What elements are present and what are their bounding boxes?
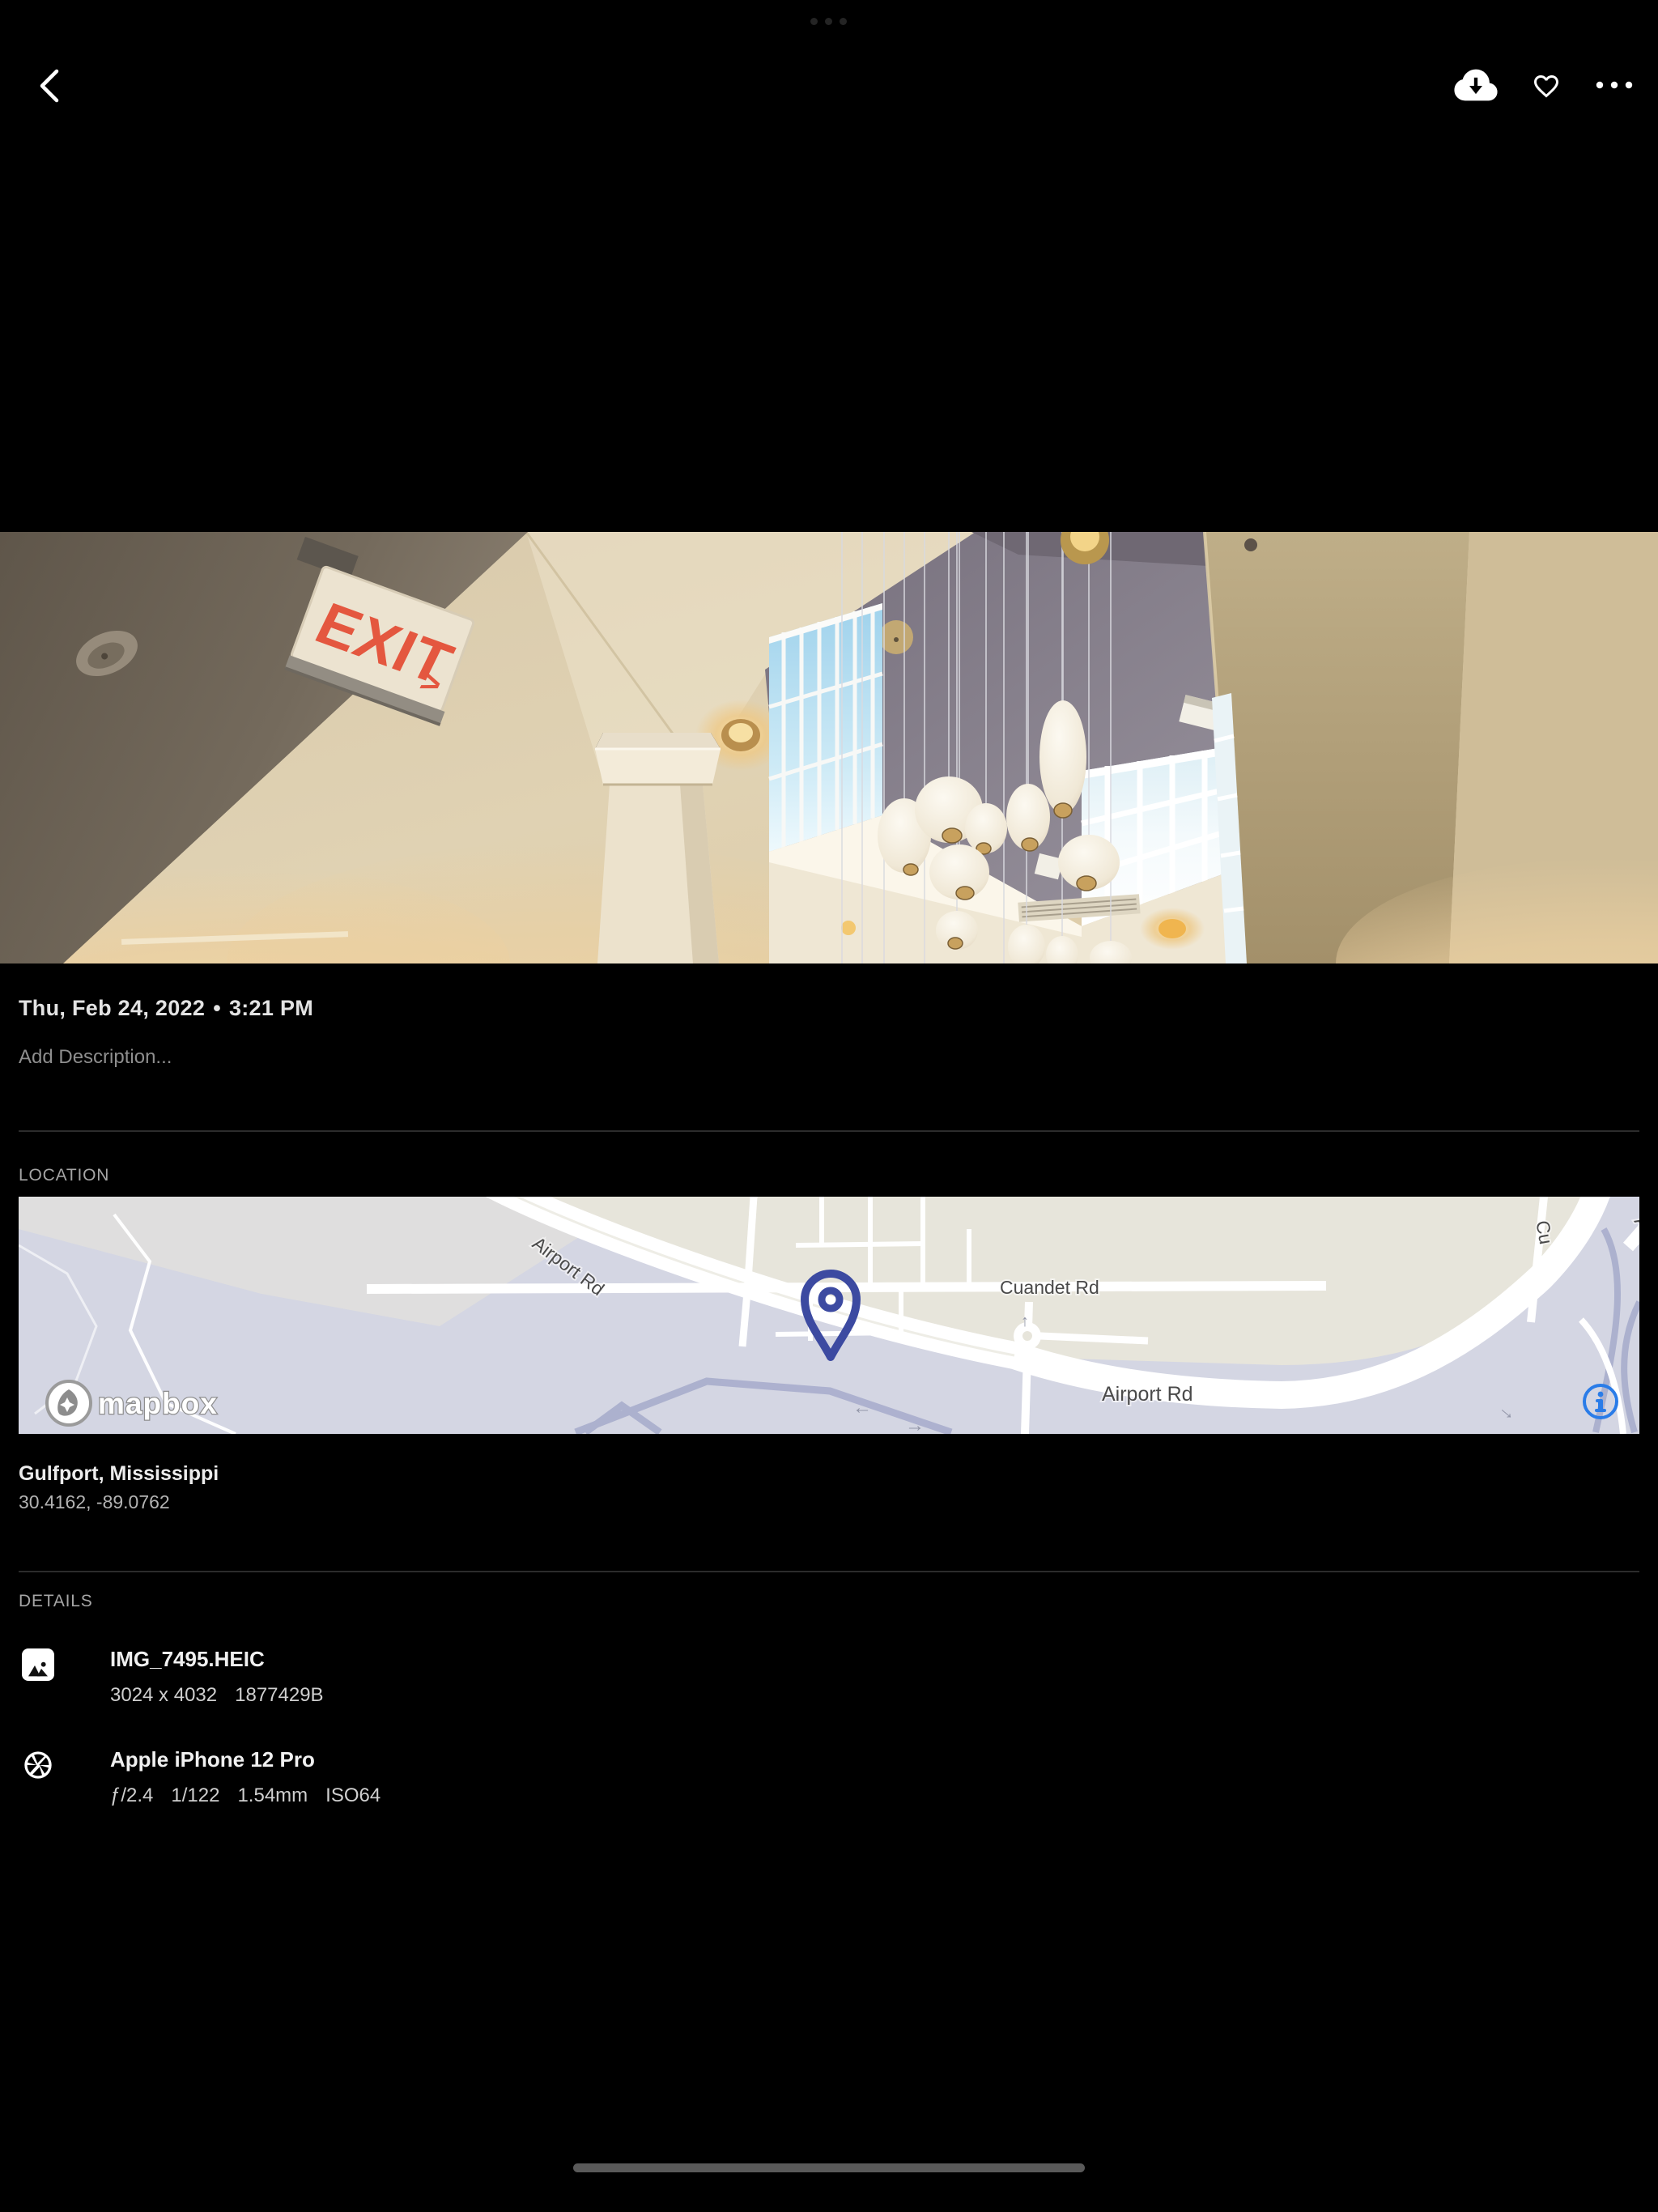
- mapbox-logo[interactable]: mapbox: [47, 1381, 218, 1425]
- map-label-airport-rd-horizontal: Airport Rd: [1102, 1383, 1193, 1406]
- details-section-title: DETAILS: [19, 1592, 93, 1611]
- map-label-cuandet-rd: Cuandet Rd: [1000, 1277, 1099, 1298]
- location-map[interactable]: ← → ↑ → Airport Rd Cuandet Rd Airport Rd…: [19, 1197, 1639, 1434]
- map-arrow-right: →: [905, 1414, 925, 1434]
- favorite-button[interactable]: [1532, 71, 1561, 101]
- map-road-cuandet: [367, 1286, 1326, 1289]
- camera-shutter: 1/122: [171, 1784, 219, 1806]
- map-arrow-up: ↑: [1021, 1312, 1029, 1330]
- file-name: IMG_7495.HEIC: [110, 1647, 265, 1672]
- location-section-title: LOCATION: [19, 1166, 109, 1185]
- file-size: 1877429B: [235, 1684, 323, 1706]
- chevron-left-icon: [32, 97, 71, 109]
- photo-right-wall: [1205, 532, 1658, 963]
- ellipsis-icon: [1593, 81, 1635, 93]
- topbar-actions: [1452, 63, 1635, 108]
- camera-focal-length: 1.54mm: [237, 1784, 308, 1806]
- map-label-street-top-right: Cu: [1532, 1219, 1557, 1245]
- file-info: 3024 x 40321877429B: [110, 1684, 342, 1707]
- camera-name: Apple iPhone 12 Pro: [110, 1747, 315, 1772]
- home-indicator[interactable]: [573, 2163, 1085, 2172]
- divider: [19, 1571, 1639, 1572]
- photo-column: [595, 733, 721, 963]
- download-button[interactable]: [1452, 67, 1499, 105]
- mapbox-logo-text: mapbox: [98, 1387, 218, 1420]
- time-text: 3:21 PM: [229, 996, 313, 1020]
- location-place: Gulfport, Mississippi: [19, 1462, 219, 1486]
- location-coordinates: 30.4162, -89.0762: [19, 1491, 170, 1513]
- back-button[interactable]: [32, 65, 71, 107]
- cloud-download-icon: [1452, 93, 1499, 105]
- camera-aperture-icon: [22, 1749, 54, 1781]
- camera-iso: ISO64: [325, 1784, 380, 1806]
- heart-outline-icon: [1532, 89, 1561, 101]
- map-arrow-left: ←: [852, 1397, 872, 1419]
- photo-date: Thu, Feb 24, 2022•3:21 PM: [19, 996, 313, 1021]
- system-indicator-dots: [810, 18, 847, 25]
- date-separator: •: [213, 996, 221, 1020]
- divider: [19, 1130, 1639, 1132]
- image-file-icon: [22, 1648, 54, 1681]
- date-text: Thu, Feb 24, 2022: [19, 996, 205, 1020]
- camera-info: ƒ/2.41/1221.54mmISO64: [110, 1784, 398, 1807]
- camera-aperture: ƒ/2.4: [110, 1784, 153, 1806]
- description-input[interactable]: [19, 1046, 990, 1069]
- photo-image[interactable]: EXIT >: [0, 532, 1658, 963]
- file-dimensions: 3024 x 4032: [110, 1684, 217, 1706]
- more-options-button[interactable]: [1593, 79, 1635, 93]
